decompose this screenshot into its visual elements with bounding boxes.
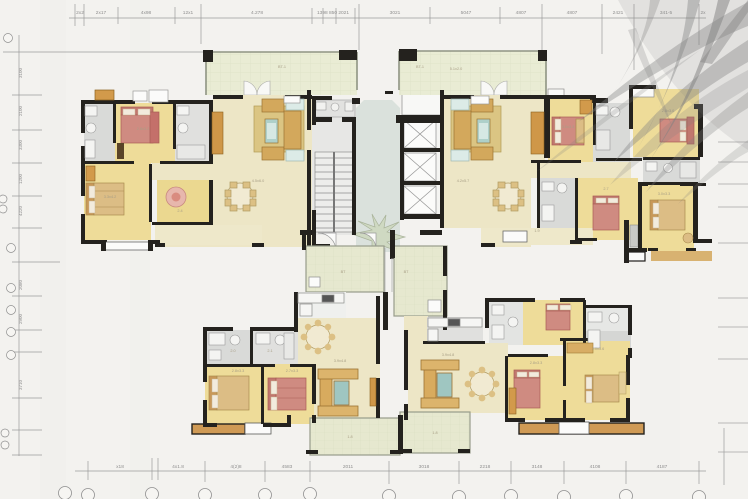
- svg-text:3300: 3300: [18, 139, 23, 150]
- svg-text:BT-1: BT-1: [278, 65, 286, 69]
- svg-text:2.1: 2.1: [267, 349, 272, 353]
- svg-text:4220: 4220: [18, 205, 23, 216]
- svg-text:2.8x3.3: 2.8x3.3: [232, 369, 244, 373]
- svg-text:1.9: 1.9: [534, 229, 539, 233]
- svg-text:2080: 2080: [18, 279, 23, 290]
- svg-text:4108: 4108: [590, 464, 601, 470]
- svg-text:4.278: 4.278: [251, 10, 263, 16]
- svg-text:2.4: 2.4: [177, 209, 182, 213]
- svg-text:2.8x3.2: 2.8x3.2: [137, 127, 149, 131]
- svg-text:1.8: 1.8: [347, 435, 352, 439]
- svg-text:2100: 2100: [18, 105, 23, 116]
- svg-text:2x17: 2x17: [96, 10, 107, 16]
- svg-text:4.2x5.7: 4.2x5.7: [457, 179, 469, 183]
- svg-text:4x98: 4x98: [141, 10, 152, 16]
- svg-text:12x1: 12x1: [183, 10, 194, 16]
- svg-text:4807: 4807: [516, 10, 527, 16]
- svg-text:x18: x18: [116, 464, 124, 470]
- svg-text:2.7x3.3: 2.7x3.3: [286, 369, 298, 373]
- svg-text:1200: 1200: [18, 173, 23, 184]
- svg-text:5.1x2.0: 5.1x2.0: [450, 67, 462, 71]
- svg-text:3.0x3.3: 3.0x3.3: [562, 125, 574, 129]
- svg-text:3.9x4.8: 3.9x4.8: [334, 359, 346, 363]
- svg-text:3100: 3100: [18, 67, 23, 78]
- svg-text:2.7: 2.7: [603, 187, 608, 191]
- svg-text:3.3x4.2: 3.3x4.2: [104, 195, 116, 199]
- svg-text:4(2)8: 4(2)8: [230, 464, 242, 470]
- svg-text:2x2: 2x2: [76, 10, 84, 16]
- svg-text:BT-1: BT-1: [416, 65, 424, 69]
- svg-text:4187: 4187: [657, 464, 668, 470]
- svg-text:3.0x3.6: 3.0x3.6: [592, 347, 604, 351]
- svg-text:3148: 3148: [532, 464, 543, 470]
- svg-text:4.5x6.0: 4.5x6.0: [252, 179, 264, 183]
- svg-text:2421: 2421: [613, 10, 624, 16]
- svg-text:3710: 3710: [18, 379, 23, 390]
- svg-text:2.8x3.3: 2.8x3.3: [530, 361, 542, 365]
- svg-text:2011: 2011: [343, 464, 354, 470]
- svg-text:2900: 2900: [18, 313, 23, 324]
- svg-text:3021: 3021: [390, 10, 401, 16]
- svg-text:4583: 4583: [282, 464, 293, 470]
- svg-text:4807: 4807: [567, 10, 578, 16]
- svg-text:1398 850 2021: 1398 850 2021: [317, 10, 349, 16]
- svg-text:5047: 5047: [461, 10, 472, 16]
- svg-text:BT: BT: [404, 270, 410, 274]
- svg-text:2.0: 2.0: [230, 349, 235, 353]
- svg-text:3.9x4.8: 3.9x4.8: [442, 353, 454, 357]
- svg-text:2218: 2218: [480, 464, 491, 470]
- svg-text:3018: 3018: [419, 464, 430, 470]
- svg-text:4x1.8: 4x1.8: [172, 464, 184, 470]
- svg-text:BT: BT: [341, 270, 347, 274]
- svg-text:1.8: 1.8: [432, 431, 437, 435]
- svg-text:3.0x3.3: 3.0x3.3: [658, 192, 670, 196]
